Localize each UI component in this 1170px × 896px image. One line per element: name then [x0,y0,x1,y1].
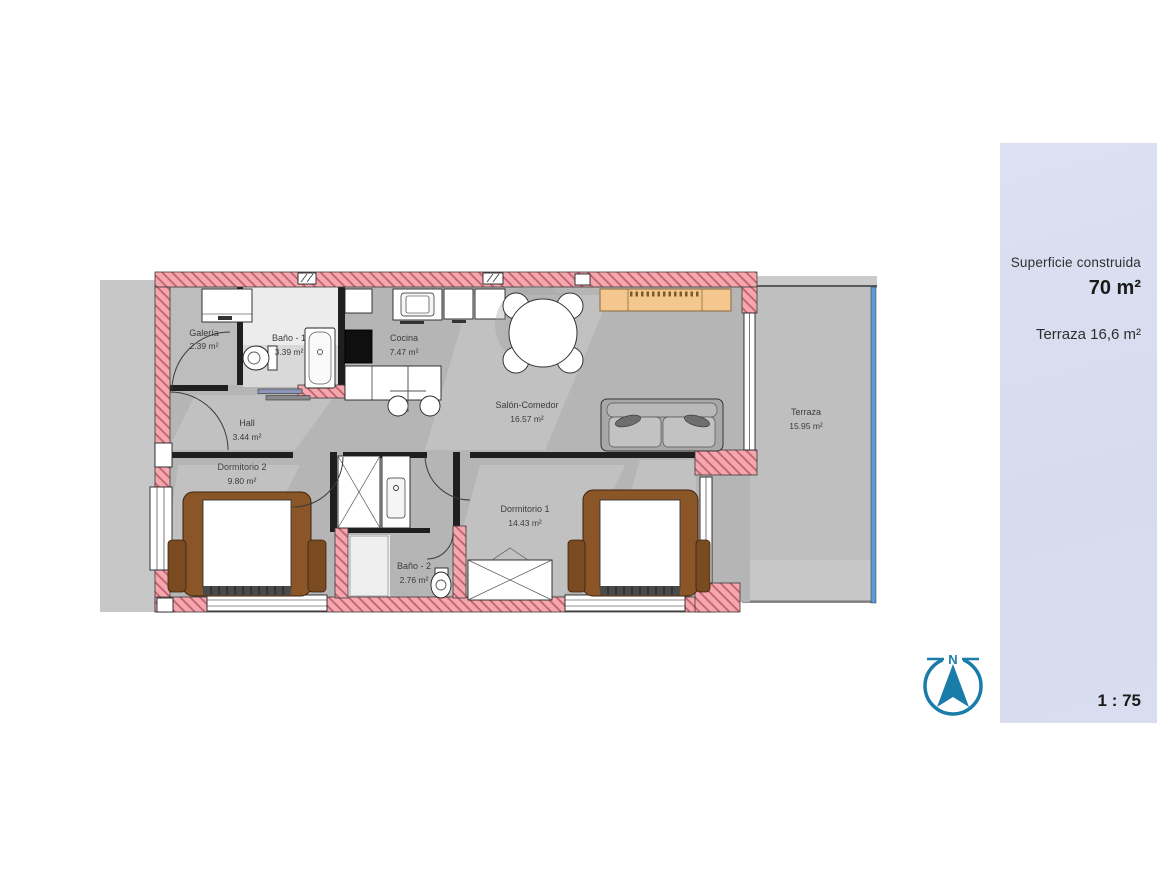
washing-machine [202,289,252,322]
room-label: Baño - 2 [397,561,431,571]
room-label: Baño - 1 [272,333,306,343]
surface-value: 70 m² [1011,277,1141,300]
info-panel: Superficie construida 70 m² Terraza 16,6… [1000,143,1157,723]
bathtub-icon [305,328,335,388]
stool [388,396,408,416]
bed-dormitorio2 [168,492,326,596]
floor-plan-page: Galería 2.39 m² Baño - 1 3.39 m² Cocina … [0,0,1170,896]
dining-set [495,285,583,373]
dining-table [509,299,577,367]
kitchen-appliance-black [345,330,372,363]
kitchen-island [345,366,441,400]
window-dormitorio2-bottom [207,595,327,611]
wall-corner-block [155,443,172,467]
room-label: Dormitorio 1 [500,504,549,514]
north-compass: N [925,650,981,714]
room-area: 2.39 m² [190,341,219,351]
room-area: 3.44 m² [233,432,262,442]
room-area: 3.39 m² [275,347,304,357]
wardrobe-hall [338,456,380,528]
room-area: 15.95 m² [789,421,823,431]
sideboard [600,289,731,311]
room-area: 2.76 m² [400,575,429,585]
room-label: Cocina [390,333,418,343]
surface-label: Superficie construida [1011,255,1141,270]
window-salon-terrace [744,313,755,450]
room-label: Terraza [791,407,821,417]
window-dormitorio1-bottom [565,595,685,611]
wall-corner-block2 [157,598,173,612]
glass-balustrade [871,287,876,603]
toilet-icon [243,346,277,370]
room-area: 7.47 m² [390,347,419,357]
room-label: Galería [189,328,219,338]
stool [420,396,440,416]
floor-plan-drawing: Galería 2.39 m² Baño - 1 3.39 m² Cocina … [0,0,1170,896]
terrace-floor [742,287,876,603]
scale-label: 1 : 75 [1098,691,1141,711]
north-arrow-icon [937,664,969,707]
sofa [601,399,723,451]
room-area: 9.80 m² [228,476,257,486]
room-label: Salón-Comedor [495,400,558,410]
room-area: 14.43 m² [508,518,542,528]
surface-info: Superficie construida 70 m² Terraza 16,6… [1011,255,1141,343]
room-label: Hall [239,418,255,428]
vanity-column [382,456,410,528]
room-area: 16.57 m² [510,414,544,424]
room-label: Dormitorio 2 [217,462,266,472]
terrace-value: Terraza 16,6 m² [1011,326,1141,343]
bed-dormitorio1 [568,490,710,596]
